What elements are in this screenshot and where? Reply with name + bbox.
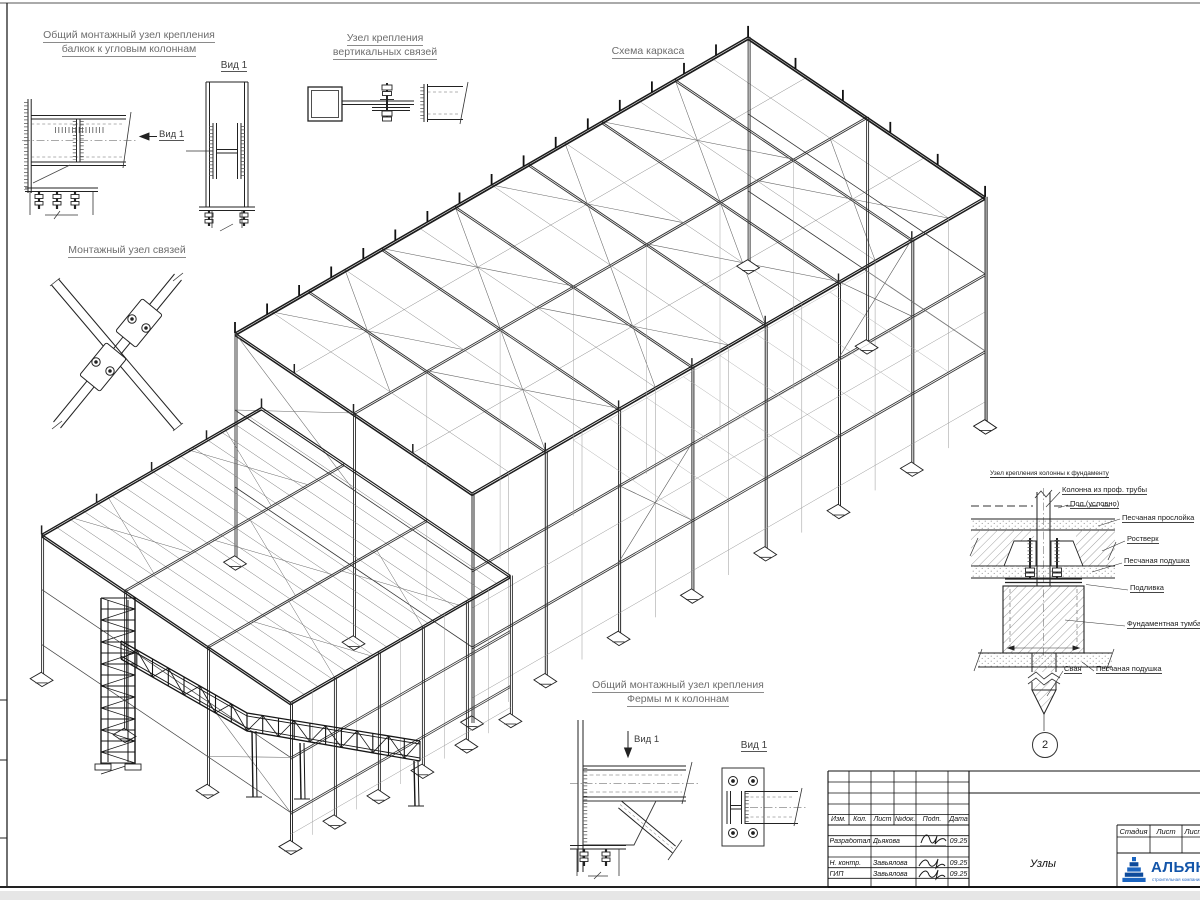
detail-corner-beam-view-label: Вид 1 — [159, 129, 184, 141]
sheet-outside-area — [0, 891, 1200, 900]
detail-truss-column-view-title: Вид 1 — [726, 740, 782, 752]
foundation-label-column: Колонна из проф. трубы — [1062, 485, 1147, 495]
foundation-label-sand-cushion-2: Песчаная подушка — [1096, 664, 1162, 674]
detail-foundation-title: Узел крепления колонны к фундаменту — [990, 470, 1109, 478]
detail-corner-beam-title-line2: балкок к угловым колоннам — [62, 43, 197, 57]
detail-corner-beam-title-line1: Общий монтажный узел крепления — [43, 29, 215, 43]
detail-corner-beam-view-title: Вид 1 — [204, 60, 264, 72]
foundation-label-foundation-block: Фундаментная тумба — [1127, 619, 1200, 629]
titleblock-doc-title: Узлы — [969, 858, 1117, 870]
detail-vertical-brace-title-line1: Узел крепления — [347, 32, 424, 46]
titleblock-date-developer: 09.25 — [948, 838, 969, 845]
titleblock-date-gip: 09.25 — [948, 871, 969, 878]
detail-brace-node-title: Монтажный узел связей — [52, 244, 202, 258]
titleblock-header-ndok: №док. — [894, 816, 916, 823]
node-marker-2: 2 — [1032, 732, 1058, 758]
detail-truss-column-title-line2: Фермы м к колоннам — [627, 693, 729, 707]
foundation-label-floor: Пол (условно) — [1070, 499, 1119, 509]
view-label-text: Вид 1 — [159, 129, 184, 141]
titleblock-header-kol: Кол. — [849, 816, 871, 823]
detail-corner-beam-title: Общий монтажный узел крепления балкок к … — [18, 29, 240, 57]
view-title-text: Вид 1 — [221, 60, 247, 72]
detail-vertical-brace-title: Узел крепления вертикальных связей — [325, 32, 445, 60]
titleblock-name-gip: Завьялова — [873, 871, 915, 878]
titleblock-sheet-header: Лист — [1150, 827, 1182, 836]
titleblock-role-gip: ГИП — [830, 871, 871, 878]
view-title-text: Вид 1 — [741, 740, 767, 752]
foundation-label-sand-layer: Песчаная прослойка — [1122, 513, 1194, 523]
foundation-label-grillage: Ростверк — [1127, 534, 1159, 544]
scheme-title: Схема каркаса — [598, 45, 698, 59]
titleblock-role-developer: Разработал — [830, 838, 871, 845]
company-tagline: строительная компания — [1152, 877, 1200, 882]
titleblock-stage-header: Стадия — [1117, 827, 1150, 836]
titleblock-sheets-header: Листов — [1182, 827, 1200, 836]
scheme-title-text: Схема каркаса — [612, 45, 685, 59]
foundation-label-pile: Свая — [1064, 664, 1082, 674]
foundation-label-sand-cushion-1: Песчаная подушка — [1124, 556, 1190, 566]
titleblock-header-izm: Изм. — [828, 816, 849, 823]
detail-brace-node-title-text: Монтажный узел связей — [68, 244, 185, 258]
titleblock-name-developer: Дьякова — [873, 838, 915, 845]
titleblock-header-podp: Подп. — [916, 816, 948, 823]
titleblock-header-data: Дата — [948, 816, 969, 823]
foundation-label-grout: Подливка — [1130, 583, 1164, 593]
detail-vertical-brace-title-line2: вертикальных связей — [333, 46, 437, 60]
titleblock-name-ncontr: Завьялова — [873, 860, 915, 867]
detail-truss-column-title: Общий монтажный узел крепления Фермы м к… — [584, 679, 772, 707]
detail-foundation-title-text: Узел крепления колонны к фундаменту — [990, 470, 1109, 478]
titleblock-date-ncontr: 09.25 — [948, 860, 969, 867]
detail-truss-column-title-line1: Общий монтажный узел крепления — [592, 679, 764, 693]
view-label-text: Вид 1 — [634, 734, 659, 745]
drawing-sheet: Общий монтажный узел крепления балкок к … — [0, 0, 1200, 900]
company-name: АЛЬЯНС — [1151, 859, 1200, 876]
titleblock-role-ncontr: Н. контр. — [830, 860, 871, 867]
detail-truss-column-view-label: Вид 1 — [634, 734, 659, 745]
titleblock-header-list: Лист — [871, 816, 894, 823]
